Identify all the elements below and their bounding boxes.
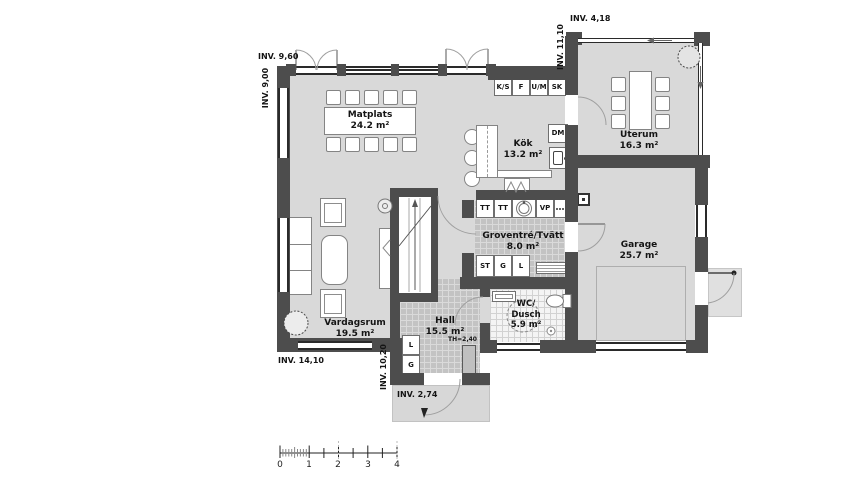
wall-hall-west [390, 302, 400, 340]
scale-tick-label: 2 [335, 461, 341, 470]
washing-machine [512, 199, 536, 218]
window-garage-right [696, 205, 707, 237]
room-label-garage: Garage 25.7 m² [620, 240, 659, 263]
wall-post [391, 64, 399, 76]
wardrobe-g: G [494, 255, 512, 277]
dining-chair [345, 137, 360, 152]
room-area: 5.9 m² [511, 320, 542, 331]
wall-wc-west-b [480, 323, 490, 342]
dining-chair [383, 90, 398, 105]
window-left-vardagsrum [278, 218, 289, 292]
wall-wc-south-b [540, 340, 596, 353]
wall-entry-bottom-a [390, 373, 424, 385]
cabinet-label: G [408, 362, 414, 369]
dishwasher-label: DM [552, 130, 565, 137]
room-area: 8.0 m² [482, 242, 563, 253]
room-name: Groventré/Tvätt [482, 231, 563, 242]
car-parking-outline [596, 266, 686, 341]
outlet-dots [556, 208, 564, 210]
room-label-vardagsrum: Vardagsrum 19.5 m² [324, 318, 386, 341]
armchair-cushion [324, 294, 342, 314]
cabinet-label: SK [552, 84, 562, 91]
heat-pump-vp: VP [536, 199, 554, 218]
cabinet-sk: SK [548, 78, 566, 96]
room-label-groventre: Groventré/Tvätt 8.0 m² [482, 231, 563, 254]
sofa-cushion-divider [289, 270, 311, 271]
cabinet-label: K/S [496, 84, 509, 91]
cabinet-label: G [500, 263, 506, 270]
room-name: Kök [504, 139, 543, 150]
garage-door-landing [708, 268, 742, 317]
scale-bar [280, 441, 397, 459]
wall-post [337, 64, 346, 76]
uterum-chair [655, 96, 670, 111]
dim-inv-1410: INV. 14,10 [278, 357, 324, 365]
room-label-uterum: Uterum 16.3 m² [620, 130, 659, 153]
uterum-sliding-glass-top [578, 38, 694, 43]
dining-chair [326, 137, 341, 152]
dining-chair [364, 137, 379, 152]
wall-entry-bottom-b [462, 373, 490, 385]
uterum-chair [611, 77, 626, 92]
hall-bench [462, 345, 476, 375]
cabinet-f: F [512, 78, 530, 96]
uterum-chair [655, 77, 670, 92]
sofa-cushion-divider [289, 244, 311, 245]
room-area: 16.3 m² [620, 141, 659, 152]
window-south-wc [497, 343, 540, 351]
room-label-matplats: Matplats 24.2 m² [348, 110, 393, 133]
scale-tick-label: 3 [365, 461, 371, 470]
linen-cabinet-l: L [512, 255, 530, 277]
wall-stairs-right [431, 188, 438, 302]
dryer-tt: TT [476, 199, 494, 218]
counter-edge-line [487, 126, 488, 177]
sofa [288, 217, 312, 295]
dim-inv-1110: INV. 11,10 [557, 24, 565, 70]
room-area: 19.5 m² [324, 329, 386, 340]
coffee-table [321, 235, 348, 285]
dining-chair [364, 90, 379, 105]
appliance-label: VP [540, 205, 551, 212]
dim-door-height: TH=2,40 [448, 337, 477, 343]
scale-tick-label: 4 [394, 461, 400, 470]
wall-post [486, 64, 496, 76]
hall-cabinet-l: L [402, 335, 420, 355]
window-south-vardagsrum [298, 341, 372, 350]
room-area: 24.2 m² [348, 121, 393, 132]
dining-chair [345, 90, 360, 105]
room-area: 25.7 m² [620, 251, 659, 262]
storage-st: ST [476, 255, 494, 277]
dim-inv-274: INV. 2,74 [397, 391, 437, 399]
uterum-chair [611, 96, 626, 111]
appliance-label: TT [480, 205, 490, 212]
room-label-kok: Kök 13.2 m² [504, 139, 543, 162]
electrical-box [577, 193, 590, 206]
wall-groventre-garage-b [565, 252, 578, 340]
groventre-bench [536, 262, 566, 274]
room-label-hall: Hall 15.5 m² [426, 316, 465, 339]
window-mullion-line [345, 69, 391, 71]
room-name: Dusch [511, 310, 542, 321]
room-area: 13.2 m² [504, 150, 543, 161]
window-mullion-line [398, 69, 438, 71]
dim-inv-418: INV. 4,18 [570, 15, 610, 23]
wall-groventre-wc [460, 277, 565, 289]
kitchen-counter [497, 170, 552, 178]
kitchen-island-counter [476, 125, 498, 178]
cabinet-label: L [519, 263, 523, 270]
cabinet-ks: K/S [494, 78, 512, 96]
cabinet-label: L [409, 342, 413, 349]
cabinet-label: U/M [531, 84, 546, 91]
dim-inv-1020: INV. 10,20 [380, 344, 388, 390]
electrical-box-dot [582, 198, 585, 201]
sink-basin [553, 151, 563, 165]
room-name: Matplats [348, 110, 393, 121]
wall-groventre-garage-a [565, 168, 578, 222]
room-name: Hall [426, 316, 465, 327]
wall-post [286, 64, 296, 76]
cabinet-um: U/M [530, 78, 548, 96]
wall-corridor-top [476, 190, 578, 200]
room-label-wc: WC/ Dusch 5.9 m² [511, 299, 542, 331]
dining-chair [326, 90, 341, 105]
window-left-matplats [278, 88, 289, 158]
scale-tick-label: 0 [277, 461, 283, 470]
armchair-cushion [324, 203, 342, 223]
armchair [320, 198, 346, 227]
room-name: Vardagsrum [324, 318, 386, 329]
floor-plan: DM K/S F U/M SK TT TT VP ST G L L G [0, 0, 855, 483]
wall-groventre-west-a [462, 200, 474, 218]
garage-door [596, 342, 686, 351]
dryer-tt: TT [494, 199, 512, 218]
staircase [399, 197, 431, 293]
uterum-sliding-glass-right [698, 43, 703, 155]
room-name: Garage [620, 240, 659, 251]
scale-tick-label: 1 [306, 461, 312, 470]
wall-wc-west-a [480, 289, 490, 297]
cabinet-label: F [519, 84, 524, 91]
dining-chair [402, 137, 417, 152]
wall-garage-right-a [695, 168, 708, 205]
uterum-table [629, 71, 652, 130]
appliance-label: TT [498, 205, 508, 212]
hall-cabinet-g: G [402, 355, 420, 375]
wall-uterum-garage [565, 155, 710, 168]
uterum-chair [655, 114, 670, 129]
wall-garage-south [686, 340, 708, 353]
dim-inv-900: INV. 9,00 [262, 68, 270, 108]
wall-stairs-left [390, 188, 399, 302]
cabinet-label: ST [480, 263, 490, 270]
wall-post [438, 64, 447, 76]
armchair [320, 289, 346, 318]
dim-inv-960: INV. 9,60 [258, 53, 298, 61]
dining-chair [383, 137, 398, 152]
room-name: Uterum [620, 130, 659, 141]
dining-chair [402, 90, 417, 105]
wall-garage-right-b [695, 237, 708, 272]
uterum-chair [611, 114, 626, 129]
room-name: WC/ [511, 299, 542, 310]
